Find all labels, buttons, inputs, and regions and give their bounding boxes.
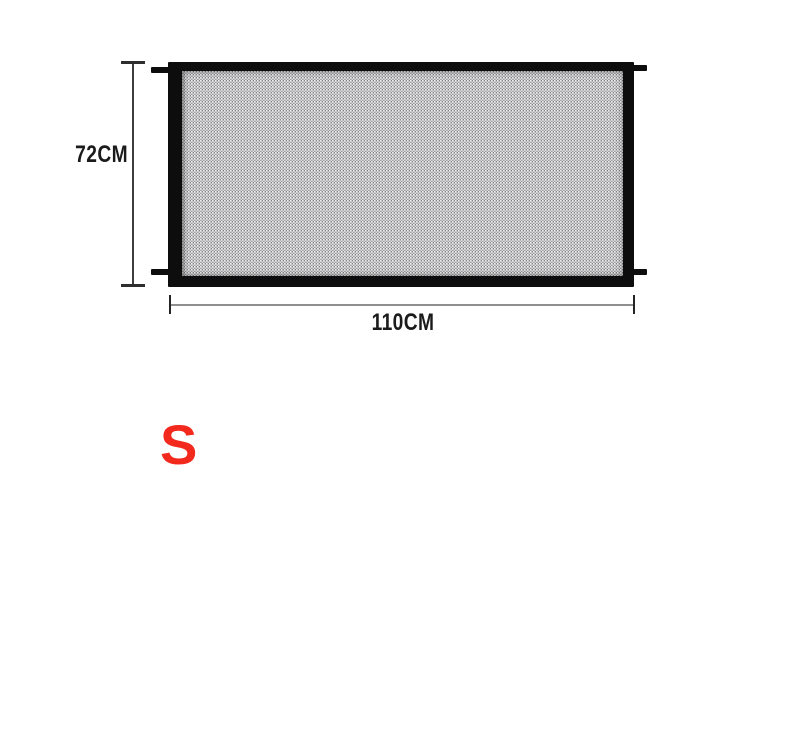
height-dimension-label: 72CM — [72, 141, 128, 169]
mesh-gate — [168, 62, 634, 287]
height-dimension-line — [132, 62, 134, 286]
height-dimension-cap-top — [121, 61, 145, 64]
mount-tab-top-left — [151, 67, 169, 73]
mount-tab-bottom-right — [629, 269, 647, 275]
mount-tab-bottom-left — [151, 269, 169, 275]
width-dimension-tick-left — [169, 295, 171, 314]
gate-mesh-panel — [182, 71, 623, 276]
width-dimension-tick-right — [633, 295, 635, 314]
height-dimension-cap-bottom — [121, 284, 145, 287]
width-dimension-line — [170, 304, 634, 306]
product-diagram: 72CM 110CM S — [0, 0, 787, 738]
mount-tab-top-right — [629, 65, 647, 71]
size-option-label: S — [160, 417, 197, 473]
width-dimension-label: 110CM — [345, 309, 462, 337]
